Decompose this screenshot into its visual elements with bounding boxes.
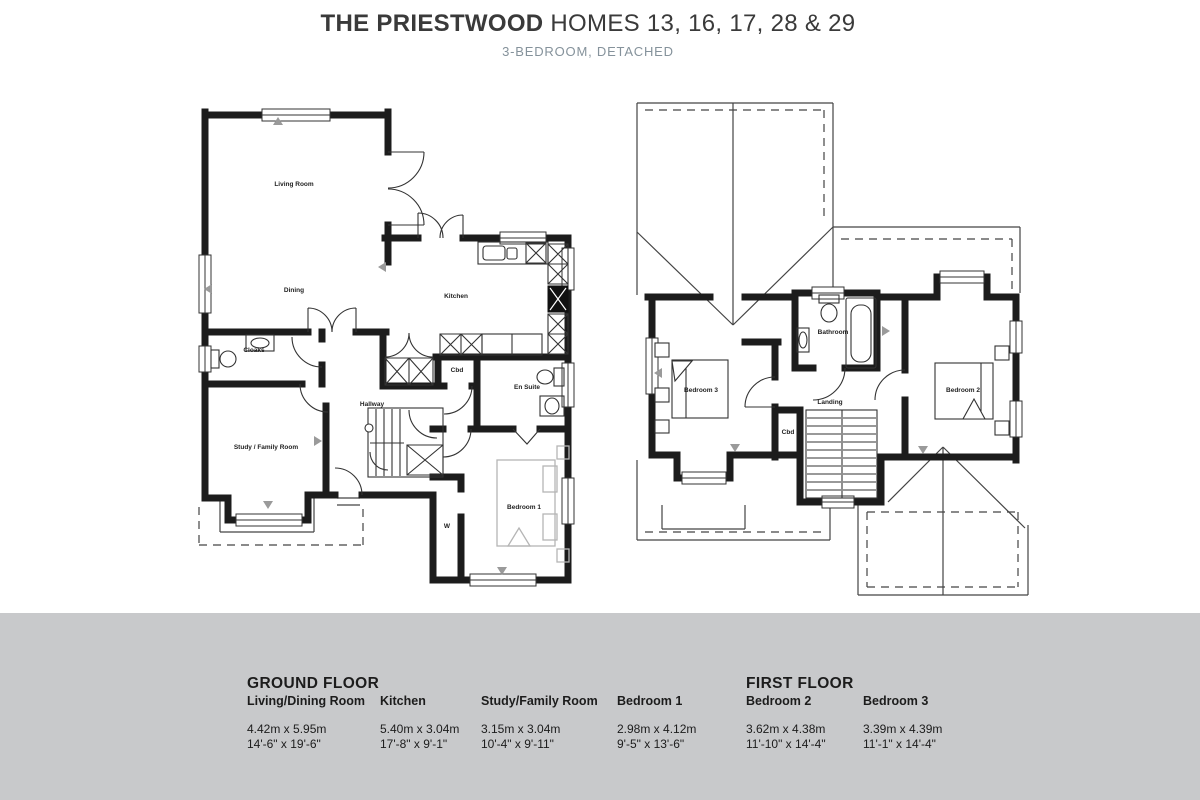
spec-metric: 3.62m x 4.38m (746, 722, 825, 736)
spec-metric: 3.39m x 4.39m (863, 722, 942, 736)
spec-imperial: 17'-8" x 9'-1" (380, 737, 447, 751)
room-label-landing: Landing (817, 399, 842, 406)
spec-room-name: Bedroom 1 (617, 694, 682, 708)
room-label-dining: Dining (284, 287, 304, 294)
spec-room-name: Bedroom 2 (746, 694, 811, 708)
room-label-study: Study / Family Room (234, 444, 299, 451)
kitchen-sink-icon (483, 246, 505, 260)
spec-room-name: Living/Dining Room (247, 694, 365, 708)
room-label-en-suite: En Suite (514, 384, 540, 391)
room-label-cbd-ground: Cbd (451, 367, 464, 374)
spec-room-name: Bedroom 3 (863, 694, 928, 708)
first-roof-dashed (645, 110, 1018, 587)
spec-imperial: 11'-1" x 14'-4" (863, 737, 936, 751)
room-label-bedroom1: Bedroom 1 (507, 504, 541, 511)
spec-room-name: Study/Family Room (481, 694, 598, 708)
spec-imperial: 10'-4" x 9'-11" (481, 737, 554, 751)
room-label-cloaks: Cloaks (243, 347, 265, 354)
dimensions-band: GROUND FLOOR Living/Dining Room 4.42m x … (0, 613, 1200, 800)
first-floor-heading: FIRST FLOOR (746, 675, 854, 693)
first-roof-outline (637, 103, 1028, 595)
room-label-kitchen: Kitchen (444, 293, 468, 300)
room-label-hallway: Hallway (360, 401, 385, 408)
spec-imperial: 11'-10" x 14'-4" (746, 737, 826, 751)
first-stairs (806, 410, 877, 498)
room-label-bedroom2: Bedroom 2 (946, 387, 980, 394)
floorplan-sheet: THE PRIESTWOODHOMES 13, 16, 17, 28 & 29 … (0, 0, 1200, 800)
room-label-wardrobe: W (444, 523, 451, 530)
floor-plans: Living Room Dining Kitchen Cloaks Study … (0, 0, 1200, 618)
spec-room-name: Kitchen (380, 694, 426, 708)
bed-icon (497, 460, 555, 546)
spec-metric: 3.15m x 3.04m (481, 722, 560, 736)
spec-imperial: 9'-5" x 13'-6" (617, 737, 684, 751)
spec-metric: 2.98m x 4.12m (617, 722, 696, 736)
spec-imperial: 14'-6" x 19'-6" (247, 737, 321, 751)
room-label-bedroom3: Bedroom 3 (684, 387, 718, 394)
cloaks-toilet-icon (211, 350, 219, 368)
room-label-living-room: Living Room (274, 181, 314, 188)
ground-floor-heading: GROUND FLOOR (247, 675, 379, 693)
room-label-cbd-first: Cbd (782, 429, 795, 436)
ground-floor-plan: Living Room Dining Kitchen Cloaks Study … (199, 109, 574, 586)
first-floor-plan: Bathroom Landing Cbd Bedroom 2 Bedroom 3 (637, 103, 1028, 595)
room-label-bathroom: Bathroom (818, 329, 849, 336)
ground-stairs (365, 408, 443, 477)
ensuite-basin-icon (540, 396, 564, 416)
spec-metric: 5.40m x 3.04m (380, 722, 459, 736)
spec-metric: 4.42m x 5.95m (247, 722, 326, 736)
